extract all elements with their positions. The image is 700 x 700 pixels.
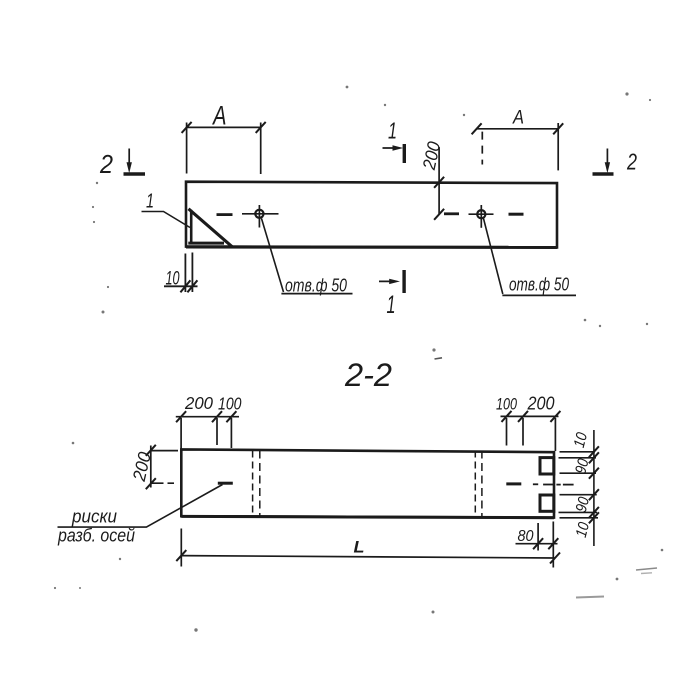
svg-text:10: 10 [571, 430, 591, 449]
svg-text:1: 1 [146, 191, 154, 213]
svg-text:2-2: 2-2 [344, 357, 392, 393]
svg-text:1: 1 [388, 118, 397, 144]
svg-text:A: A [512, 108, 524, 129]
svg-text:80: 80 [518, 528, 534, 545]
svg-text:90: 90 [572, 457, 592, 476]
svg-text:200: 200 [184, 393, 213, 413]
svg-text:200: 200 [419, 140, 445, 172]
svg-text:риски: риски [71, 507, 117, 527]
svg-text:2: 2 [99, 149, 113, 179]
svg-text:отв.ф 50: отв.ф 50 [509, 274, 570, 295]
svg-text:A: A [212, 101, 227, 131]
svg-text:200: 200 [527, 392, 555, 413]
svg-text:L: L [354, 537, 365, 556]
svg-text:2: 2 [626, 149, 637, 175]
svg-text:100: 100 [218, 393, 242, 413]
svg-text:отв.ф 50: отв.ф 50 [285, 275, 348, 296]
svg-text:10: 10 [166, 268, 180, 289]
svg-text:1: 1 [387, 291, 396, 319]
svg-text:100: 100 [496, 394, 517, 413]
svg-text:разб. осей: разб. осей [57, 526, 135, 546]
